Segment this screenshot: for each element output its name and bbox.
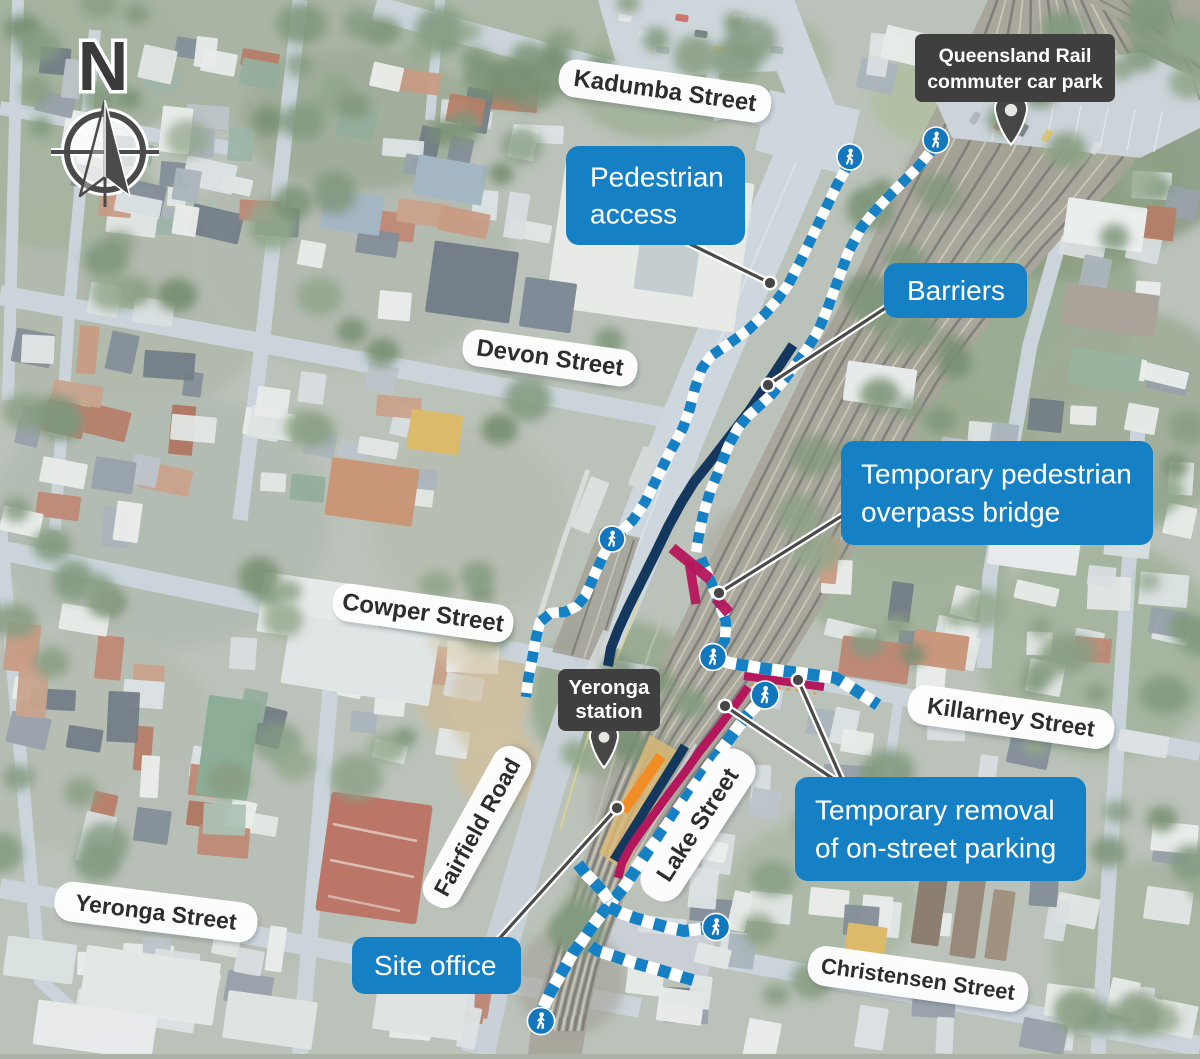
- svg-text:Barriers: Barriers: [907, 275, 1005, 306]
- svg-text:Yeronga: Yeronga: [569, 676, 650, 699]
- svg-text:N: N: [78, 27, 129, 105]
- svg-text:overpass bridge: overpass bridge: [861, 497, 1060, 528]
- svg-text:Temporary pedestrian: Temporary pedestrian: [861, 459, 1132, 490]
- svg-text:of on-street parking: of on-street parking: [815, 833, 1056, 864]
- svg-text:station: station: [575, 700, 642, 723]
- svg-text:Pedestrian: Pedestrian: [590, 162, 724, 193]
- svg-text:Site office: Site office: [374, 950, 496, 981]
- svg-text:access: access: [590, 199, 677, 230]
- svg-text:Queensland Rail: Queensland Rail: [939, 45, 1092, 67]
- svg-text:Temporary removal: Temporary removal: [815, 795, 1055, 826]
- svg-text:commuter car park: commuter car park: [927, 71, 1103, 93]
